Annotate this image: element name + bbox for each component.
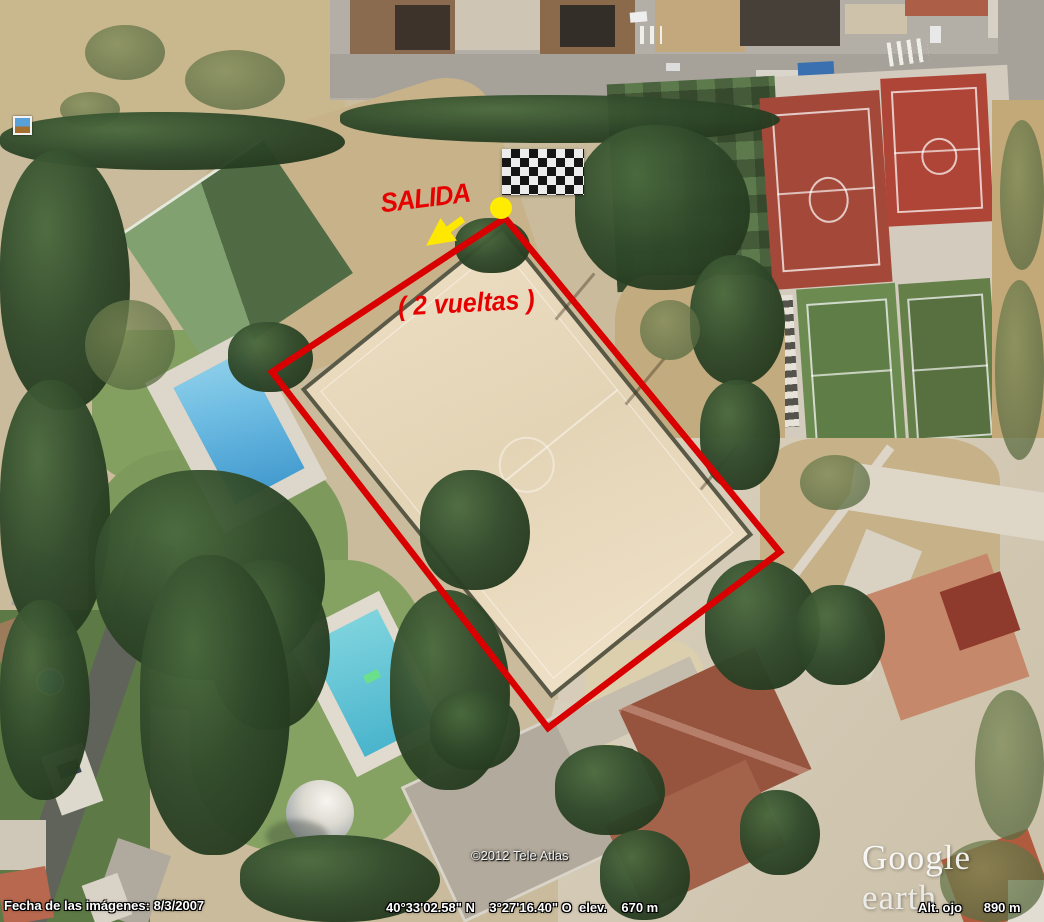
building-roof bbox=[560, 5, 615, 47]
tree-cluster bbox=[555, 745, 665, 835]
scrub-patch bbox=[1000, 120, 1044, 270]
building-roof bbox=[740, 0, 840, 46]
scrub-patch bbox=[800, 455, 870, 510]
building-roof bbox=[395, 5, 450, 50]
car bbox=[630, 11, 648, 22]
crosswalk bbox=[640, 26, 662, 44]
tree-cluster bbox=[340, 95, 780, 143]
tennis-court bbox=[796, 283, 907, 461]
house-roof bbox=[0, 820, 46, 870]
tennis-court bbox=[898, 278, 1002, 456]
google-earth-viewport[interactable]: SALIDA ( 2 vueltas ) ©2012 Tele Atlas Go… bbox=[0, 0, 1044, 922]
map-copyright: ©2012 Tele Atlas bbox=[471, 848, 569, 863]
building-roof bbox=[455, 0, 540, 50]
car bbox=[930, 26, 941, 43]
building-roof bbox=[845, 4, 907, 34]
eye-altitude: Alt. ojo 890 m bbox=[918, 900, 1021, 915]
coordinates-readout: 40°33'02.58" N 3°27'16.40" O elev. 670 m bbox=[386, 900, 658, 915]
scrub-patch bbox=[995, 280, 1044, 460]
photo-marker-icon[interactable] bbox=[13, 116, 32, 135]
basketball-court bbox=[880, 73, 994, 226]
scrub-patch bbox=[185, 50, 285, 110]
tree-cluster bbox=[420, 470, 530, 590]
tree-cluster bbox=[690, 255, 785, 385]
imagery-date: Fecha de las imágenes: 8/3/2007 bbox=[4, 898, 204, 913]
scrub-patch bbox=[85, 25, 165, 80]
car bbox=[666, 63, 680, 71]
scrub-patch bbox=[85, 300, 175, 390]
tree-cluster bbox=[740, 790, 820, 875]
tree-cluster bbox=[455, 218, 530, 273]
tree-cluster bbox=[700, 380, 780, 490]
scrub-patch bbox=[975, 690, 1044, 840]
checkered-flag-icon[interactable] bbox=[502, 149, 584, 195]
scrub-patch bbox=[640, 300, 700, 360]
house-roof bbox=[0, 866, 54, 922]
tree-cluster bbox=[430, 690, 520, 770]
watermark-google: Google bbox=[862, 838, 971, 877]
building-roof bbox=[905, 0, 990, 16]
construction-lot bbox=[655, 0, 745, 52]
tree-cluster bbox=[795, 585, 885, 685]
tree-cluster bbox=[0, 600, 90, 800]
tree-cluster bbox=[228, 322, 313, 392]
